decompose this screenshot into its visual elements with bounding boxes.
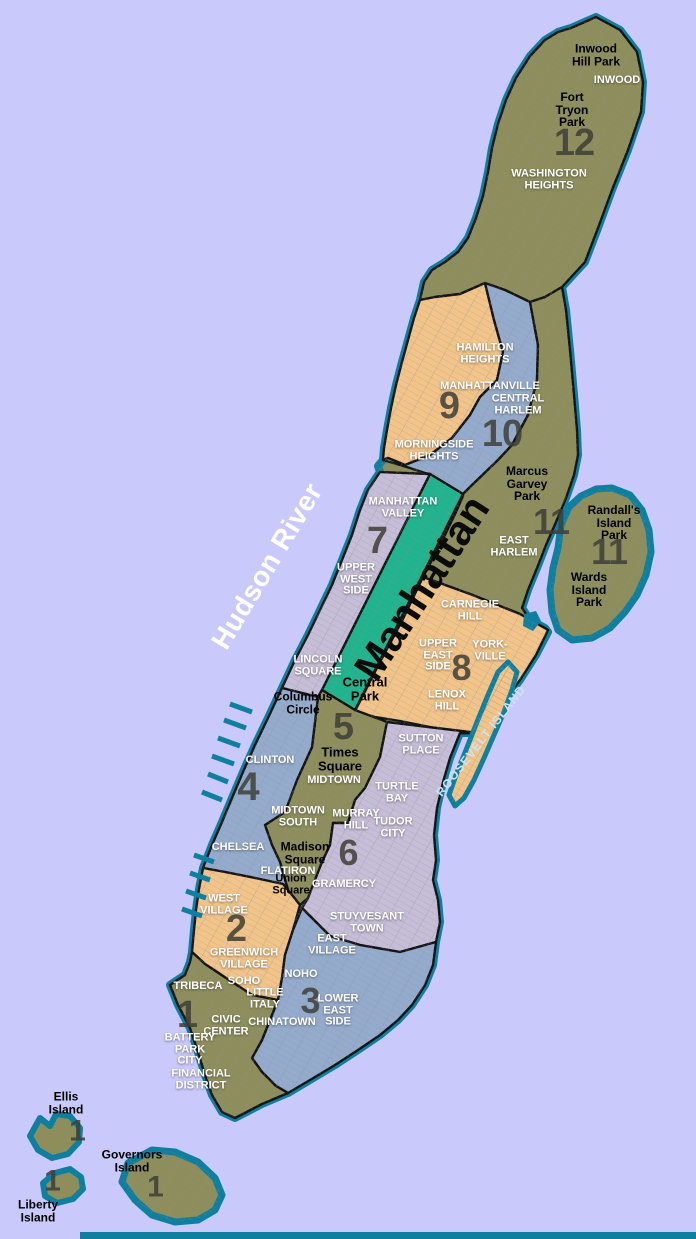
map-edge-strip bbox=[80, 1232, 696, 1239]
map-svg bbox=[0, 0, 696, 1239]
liberty-island-region bbox=[43, 1169, 83, 1203]
ellis-island-region bbox=[30, 1114, 80, 1158]
manhattan-districts-map: Inwood Hill ParkFort Tryon ParkMarcus Ga… bbox=[0, 0, 696, 1239]
map-layers bbox=[0, 0, 696, 1239]
